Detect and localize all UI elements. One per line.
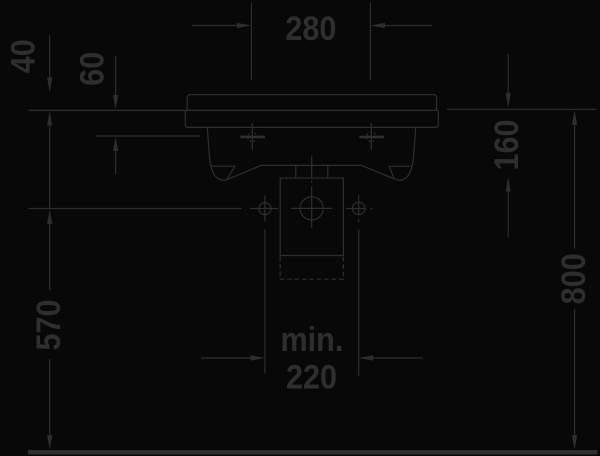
svg-text:60: 60 (73, 52, 111, 86)
svg-text:800: 800 (554, 253, 592, 304)
svg-text:40: 40 (4, 39, 42, 73)
svg-text:280: 280 (285, 10, 336, 48)
svg-text:570: 570 (29, 299, 67, 350)
svg-text:160: 160 (488, 119, 526, 170)
svg-text:220: 220 (286, 358, 337, 396)
svg-text:min.: min. (280, 321, 343, 359)
